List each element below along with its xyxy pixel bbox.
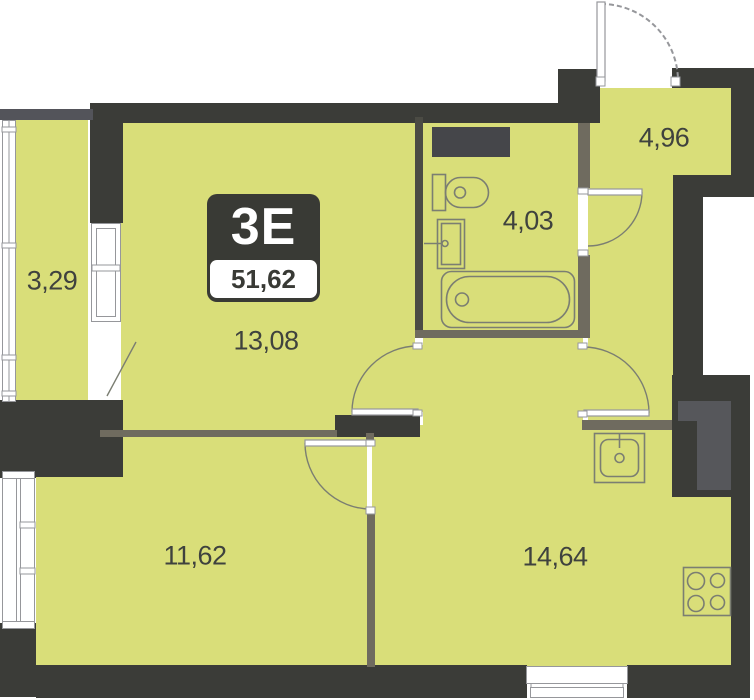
area-label-bathroom: 4,03 — [503, 206, 554, 237]
bedroom-door-leaf — [305, 440, 371, 446]
washbasin-icon — [424, 220, 465, 269]
stove-icon — [684, 568, 731, 616]
entry-door-arc — [601, 4, 678, 81]
bedroom-door-arc — [305, 443, 371, 509]
living-door-leaf — [352, 409, 418, 415]
bathroom-door-leaf — [588, 189, 642, 195]
kitchen-sink-icon — [595, 434, 645, 483]
total-area-label: 51,62 — [210, 260, 317, 298]
living-door-arc — [352, 346, 418, 412]
area-label-loggia: 3,29 — [27, 266, 78, 297]
area-label-kitchen: 14,64 — [522, 542, 587, 573]
area-label-hallway: 4,96 — [639, 123, 690, 154]
entry-door-leaf — [597, 2, 605, 81]
toilet-icon — [433, 175, 489, 211]
unit-badge: 3E 51,62 — [207, 194, 320, 302]
unit-type-label: 3E — [207, 194, 320, 260]
kitchen-door-leaf — [584, 410, 649, 416]
bathtub-icon — [442, 272, 575, 328]
bathroom-door-arc — [588, 192, 642, 246]
area-label-bedroom: 11,62 — [163, 541, 226, 572]
loggia-door-leaf — [107, 342, 136, 396]
kitchen-door-arc — [583, 347, 649, 413]
plan-linework — [0, 0, 754, 700]
area-label-living: 13,08 — [233, 326, 298, 357]
floor-plan: 3,29 13,08 4,03 4,96 11,62 14,64 3E 51,6… — [0, 0, 754, 700]
